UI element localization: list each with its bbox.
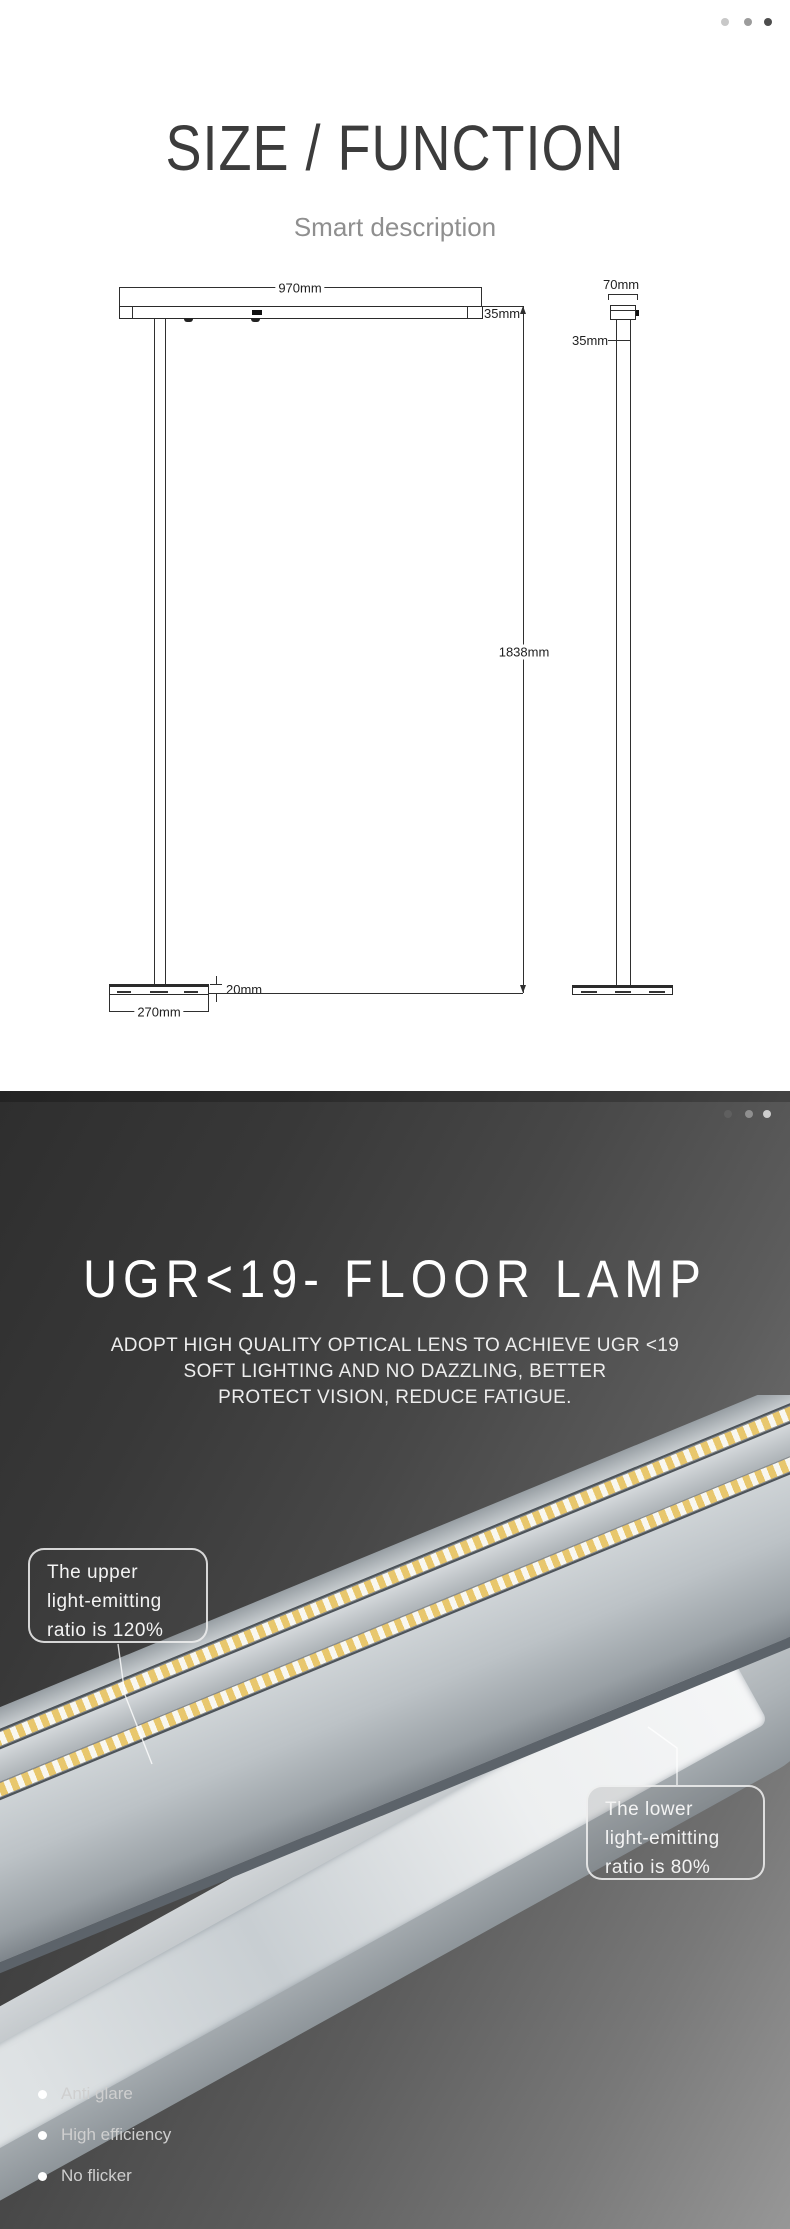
front-head-bar — [119, 306, 483, 319]
feature-anti-glare: Anti glare — [38, 2084, 133, 2104]
size-section-subtitle: Smart description — [0, 212, 790, 243]
front-head-switch — [252, 310, 262, 315]
front-width-dim-end-left — [119, 287, 120, 306]
callout-lower-line-3: ratio is 80% — [605, 1853, 763, 1882]
side-base-foot-3 — [649, 991, 665, 993]
front-head-sensor-right — [251, 318, 260, 322]
ugr-subtitle-line-2: SOFT LIGHTING AND NO DAZZLING, BETTER — [0, 1361, 790, 1383]
ugr-banner-section: UGR<19- FLOOR LAMP ADOPT HIGH QUALITY OP… — [0, 1091, 790, 2229]
front-head-endcap-left — [132, 306, 133, 319]
side-head-width-dim-line — [608, 294, 638, 295]
front-head-height-label: 35mm — [484, 306, 520, 321]
floor-reference-line — [209, 993, 523, 994]
bullet-icon — [38, 2131, 47, 2140]
product-description-page: SIZE / FUNCTION Smart description 970mm … — [0, 0, 790, 2229]
carousel-dot-dark-2[interactable] — [745, 1110, 753, 1118]
carousel-dot-dark-3-active[interactable] — [763, 1110, 771, 1118]
feature-high-efficiency: High efficiency — [38, 2125, 171, 2145]
feature-label: Anti glare — [61, 2084, 133, 2104]
base-width-ext-right — [208, 995, 209, 1012]
side-head-box — [610, 305, 636, 320]
base-width-ext-left — [109, 995, 110, 1012]
feature-no-flicker: No flicker — [38, 2166, 132, 2186]
front-base-plate — [109, 984, 209, 995]
carousel-dot-2[interactable] — [744, 18, 752, 26]
front-base-foot-1 — [117, 991, 131, 993]
callout-upper-line-3: ratio is 120% — [47, 1616, 206, 1645]
front-base-foot-2 — [150, 991, 168, 993]
side-head-button — [636, 310, 639, 316]
front-base-foot-3 — [184, 991, 198, 993]
base-thickness-tick-top — [210, 984, 222, 985]
bullet-icon — [38, 2172, 47, 2181]
front-width-dim-end-right — [481, 287, 482, 306]
pole-height-arrow-bottom — [520, 985, 526, 993]
callout-lower-ratio: The lower light-emitting ratio is 80% — [586, 1785, 765, 1880]
base-thickness-ext-top — [216, 976, 217, 984]
callout-upper-line-1: The upper — [47, 1558, 206, 1587]
side-pole-line-right — [630, 320, 631, 985]
front-head-sensor-left — [184, 318, 193, 322]
side-pole-width-tick — [608, 340, 631, 341]
base-thickness-label: 20mm — [226, 982, 262, 997]
front-head-endcap-right — [467, 306, 468, 319]
feature-label: No flicker — [61, 2166, 132, 2186]
carousel-dot-dark-1[interactable] — [724, 1110, 732, 1118]
side-base-plate — [572, 985, 673, 995]
front-pole-line-right — [165, 319, 166, 984]
front-pole-line-left — [154, 319, 155, 984]
base-width-label: 270mm — [134, 1005, 183, 1020]
ugr-subtitle-line-1: ADOPT HIGH QUALITY OPTICAL LENS TO ACHIE… — [0, 1335, 790, 1357]
size-section-title: SIZE / FUNCTION — [0, 112, 790, 185]
pole-height-ref-top — [481, 306, 523, 307]
bullet-icon — [38, 2090, 47, 2099]
carousel-dot-3-active[interactable] — [764, 18, 772, 26]
pole-height-label: 1838mm — [496, 645, 553, 660]
front-width-label: 970mm — [275, 281, 324, 296]
side-base-foot-2 — [615, 991, 631, 993]
callout-lower-line-2: light-emitting — [605, 1824, 763, 1853]
side-pole-line-left — [616, 320, 617, 985]
callout-lower-line-1: The lower — [605, 1795, 763, 1824]
base-thickness-ext-bottom — [216, 994, 217, 1002]
ugr-title: UGR<19- FLOOR LAMP — [0, 1248, 790, 1310]
feature-label: High efficiency — [61, 2125, 171, 2145]
callout-upper-line-2: light-emitting — [47, 1587, 206, 1616]
side-head-inner-line — [611, 310, 635, 311]
side-head-width-label: 70mm — [603, 277, 639, 292]
side-pole-width-label: 35mm — [572, 333, 608, 348]
carousel-dot-1[interactable] — [721, 18, 729, 26]
callout-upper-ratio: The upper light-emitting ratio is 120% — [28, 1548, 208, 1643]
side-head-width-tick-right — [637, 294, 638, 300]
side-head-width-tick-left — [608, 294, 609, 300]
side-base-foot-1 — [581, 991, 597, 993]
section-divider-strip — [0, 1091, 790, 1102]
pole-height-arrow-top — [520, 306, 526, 314]
